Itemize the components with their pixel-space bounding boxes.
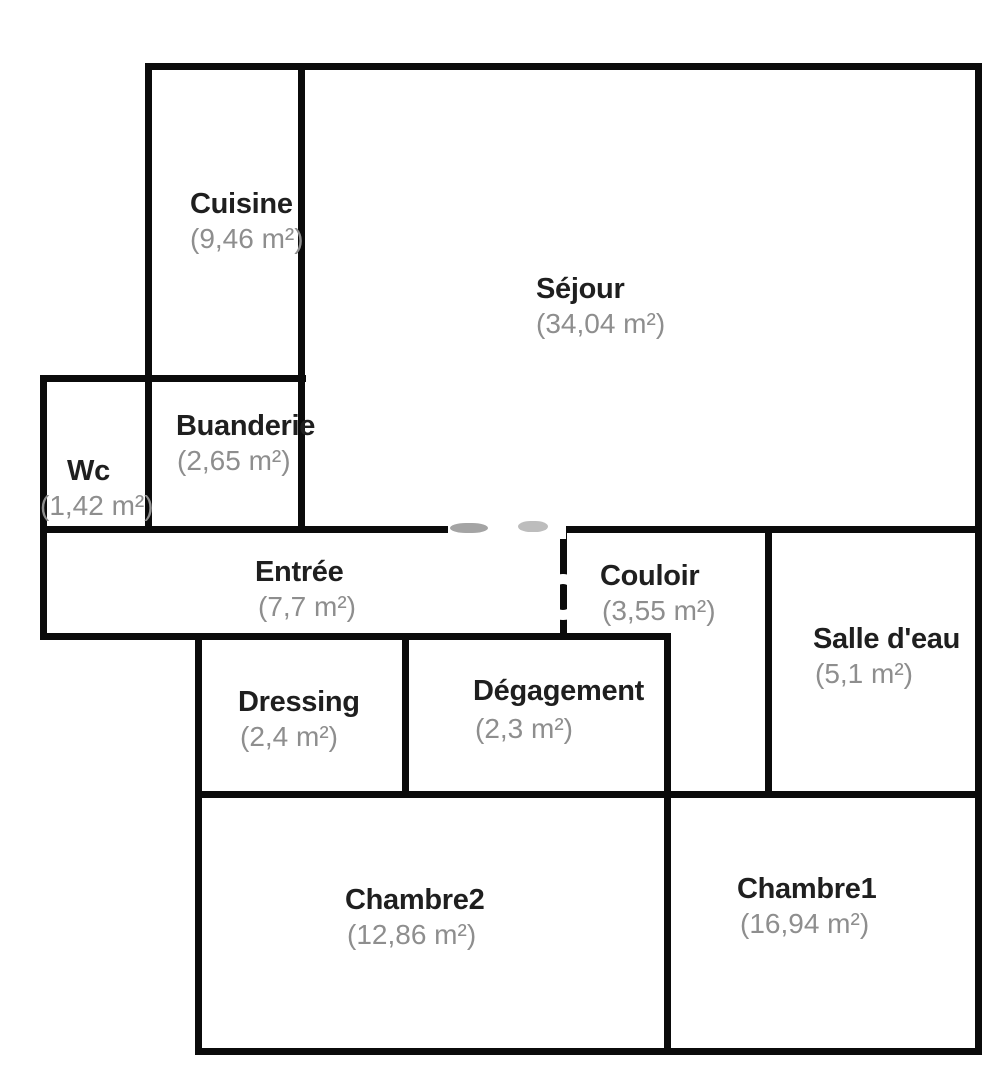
- room-label-entree: Entrée (7,7 m²): [255, 554, 356, 623]
- room-name-degagement: Dégagement: [473, 673, 644, 709]
- wall-top-border: [145, 63, 982, 70]
- room-name-buanderie: Buanderie: [176, 408, 315, 444]
- room-label-degagement: Dégagement (2,3 m²): [473, 673, 644, 745]
- room-name-couloir: Couloir: [600, 558, 716, 594]
- room-name-entree: Entrée: [255, 554, 356, 590]
- room-label-sejour: Séjour (34,04 m²): [536, 271, 665, 340]
- wall-chambre-divider: [664, 633, 671, 1055]
- wall-entree-bottom: [40, 633, 671, 640]
- room-name-sejour: Séjour: [536, 271, 665, 307]
- room-label-dressing: Dressing (2,4 m²): [238, 684, 360, 753]
- wall-salle-deau-left: [765, 526, 772, 798]
- room-area-cuisine: (9,46 m²): [190, 223, 304, 255]
- room-name-salle-deau: Salle d'eau: [813, 621, 960, 657]
- room-name-dressing: Dressing: [238, 684, 360, 720]
- wall-dressing-degagement: [402, 633, 409, 798]
- wall-wc-buanderie-top: [40, 375, 306, 382]
- watermark-wall-remnant: [450, 523, 488, 533]
- room-area-buanderie: (2,65 m²): [177, 445, 315, 477]
- room-label-buanderie: Buanderie (2,65 m²): [176, 408, 315, 477]
- room-area-dressing: (2,4 m²): [240, 721, 360, 753]
- room-name-chambre1: Chambre1: [737, 871, 876, 907]
- room-area-chambre2: (12,86 m²): [347, 919, 484, 951]
- wall-chambres-top: [195, 791, 982, 798]
- room-area-degagement: (2,3 m²): [475, 713, 644, 745]
- room-area-chambre1: (16,94 m²): [740, 908, 876, 940]
- room-area-salle-deau: (5,1 m²): [815, 658, 960, 690]
- room-area-sejour: (34,04 m²): [536, 308, 665, 340]
- room-label-wc: Wc (1,42 m²): [67, 453, 154, 522]
- room-label-couloir: Couloir (3,55 m²): [600, 558, 716, 627]
- room-area-wc: (1,42 m²): [40, 490, 154, 522]
- room-area-entree: (7,7 m²): [258, 591, 356, 623]
- watermark-wall-remnant: [518, 521, 548, 532]
- room-name-chambre2: Chambre2: [345, 882, 484, 918]
- room-label-chambre1: Chambre1 (16,94 m²): [737, 871, 876, 940]
- wall-bottom-border: [195, 1048, 982, 1055]
- room-label-chambre2: Chambre2 (12,86 m²): [345, 882, 484, 951]
- watermark-ring-artifact: [542, 574, 584, 620]
- room-area-couloir: (3,55 m²): [602, 595, 716, 627]
- wall-right-border: [975, 63, 982, 1055]
- room-name-cuisine: Cuisine: [190, 186, 304, 222]
- room-name-wc: Wc: [67, 453, 154, 489]
- room-label-cuisine: Cuisine (9,46 m²): [190, 186, 304, 255]
- floor-plan: Cuisine (9,46 m²) Séjour (34,04 m²) Buan…: [0, 0, 1002, 1080]
- room-label-salle-deau: Salle d'eau (5,1 m²): [813, 621, 960, 690]
- wall-dressing-left: [195, 633, 202, 1055]
